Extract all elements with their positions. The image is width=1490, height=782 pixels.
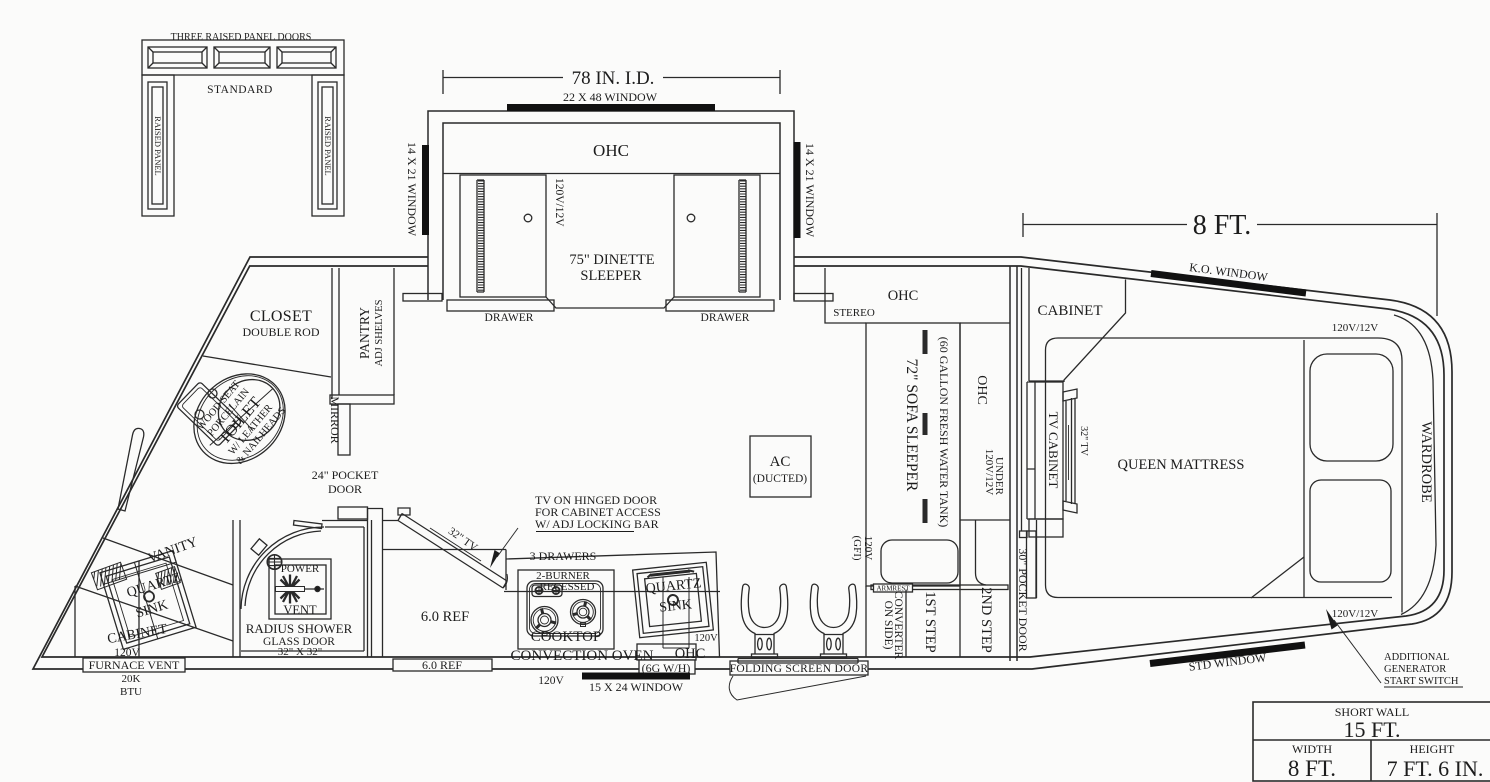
svg-text:120V/12V: 120V/12V <box>553 178 565 227</box>
svg-text:14 X 21 WINDOW: 14 X 21 WINDOW <box>405 142 419 237</box>
svg-text:78 IN. I.D.: 78 IN. I.D. <box>572 68 655 89</box>
svg-text:22 X 48 WINDOW: 22 X 48 WINDOW <box>563 90 658 104</box>
svg-text:120V: 120V <box>694 633 718 644</box>
svg-text:VANITY: VANITY <box>146 535 200 567</box>
svg-text:AC: AC <box>770 454 791 470</box>
svg-text:(6G W/H): (6G W/H) <box>642 661 691 675</box>
svg-text:(60 GALLON FRESH WATER TANK): (60 GALLON FRESH WATER TANK) <box>937 337 951 528</box>
svg-text:6.0 REF: 6.0 REF <box>421 609 469 625</box>
svg-text:ADJ SHELVES: ADJ SHELVES <box>374 299 385 366</box>
svg-text:PANTRY: PANTRY <box>357 307 372 359</box>
svg-text:FURNACE VENT: FURNACE VENT <box>89 658 180 672</box>
svg-text:3 DRAWERS: 3 DRAWERS <box>530 549 597 563</box>
svg-text:RADIUS SHOWER: RADIUS SHOWER <box>246 621 353 636</box>
svg-text:120V/12V: 120V/12V <box>1332 608 1379 620</box>
svg-text:7 FT. 6 IN.: 7 FT. 6 IN. <box>1387 756 1484 781</box>
svg-text:QUEEN MATTRESS: QUEEN MATTRESS <box>1118 457 1245 473</box>
svg-text:CLOSET: CLOSET <box>250 308 312 325</box>
svg-text:STANDARD: STANDARD <box>207 84 273 96</box>
svg-text:OHC: OHC <box>888 288 919 304</box>
svg-text:30" POCKET DOOR: 30" POCKET DOOR <box>1016 548 1030 651</box>
svg-text:RECESSED: RECESSED <box>539 581 594 593</box>
svg-text:START SWITCH: START SWITCH <box>1384 676 1459 687</box>
svg-text:WIDTH: WIDTH <box>1292 742 1332 756</box>
svg-text:CONVECTION OVEN: CONVECTION OVEN <box>511 648 654 664</box>
svg-text:OHC: OHC <box>675 646 706 662</box>
svg-text:32" TV: 32" TV <box>1078 426 1089 457</box>
svg-text:6.0 REF: 6.0 REF <box>422 658 462 672</box>
svg-text:1ST STEP: 1ST STEP <box>922 591 938 652</box>
svg-text:120V: 120V <box>538 675 564 687</box>
svg-text:ADDITIONAL: ADDITIONAL <box>1384 652 1449 663</box>
svg-text:2ND STEP: 2ND STEP <box>978 587 994 653</box>
svg-text:UNDER: UNDER <box>993 457 1005 496</box>
svg-text:14 X 21 WINDOW: 14 X 21 WINDOW <box>803 143 817 238</box>
svg-text:CABINET: CABINET <box>1038 303 1103 319</box>
svg-text:SLEEPER: SLEEPER <box>580 268 642 284</box>
svg-text:15 FT.: 15 FT. <box>1343 717 1400 742</box>
svg-text:DOUBLE ROD: DOUBLE ROD <box>243 325 320 339</box>
svg-text:72" SOFA SLEEPER: 72" SOFA SLEEPER <box>903 359 920 492</box>
svg-text:QUARTZ: QUARTZ <box>645 576 702 597</box>
svg-text:COOKTOP: COOKTOP <box>531 629 602 645</box>
svg-text:(GFI): (GFI) <box>851 535 863 560</box>
svg-text:15 X 24 WINDOW: 15 X 24 WINDOW <box>589 680 684 694</box>
svg-text:DRAWER: DRAWER <box>701 312 750 324</box>
svg-text:GENERATOR: GENERATOR <box>1384 664 1446 675</box>
svg-text:OHC: OHC <box>974 375 989 405</box>
svg-text:STEREO: STEREO <box>833 307 875 319</box>
svg-text:TV CABINET: TV CABINET <box>1046 412 1061 489</box>
svg-text:HEIGHT: HEIGHT <box>1410 742 1455 756</box>
svg-text:POWER: POWER <box>281 563 320 575</box>
svg-text:24" POCKET: 24" POCKET <box>312 468 379 482</box>
svg-text:20K: 20K <box>122 673 141 685</box>
svg-text:8 FT.: 8 FT. <box>1288 756 1336 781</box>
svg-text:32" X 32": 32" X 32" <box>278 646 322 658</box>
svg-text:VENT: VENT <box>283 603 317 617</box>
svg-text:(DUCTED): (DUCTED) <box>753 473 807 485</box>
svg-text:W/ ADJ LOCKING BAR: W/ ADJ LOCKING BAR <box>535 517 659 531</box>
svg-text:120V/12V: 120V/12V <box>1332 322 1379 334</box>
svg-text:MIRROR: MIRROR <box>328 396 342 443</box>
svg-text:WARDROBE: WARDROBE <box>1418 421 1434 503</box>
svg-text:SINK: SINK <box>659 597 693 615</box>
svg-text:RAISED PANEL: RAISED PANEL <box>153 116 163 175</box>
svg-text:ON SIDE): ON SIDE) <box>882 601 894 650</box>
svg-text:THREE RAISED PANEL DOORS: THREE RAISED PANEL DOORS <box>171 32 312 43</box>
svg-text:RAISED PANEL: RAISED PANEL <box>323 116 333 175</box>
svg-text:OHC: OHC <box>593 141 629 160</box>
svg-text:BTU: BTU <box>120 686 142 698</box>
svg-text:75" DINETTE: 75" DINETTE <box>569 252 654 268</box>
svg-text:8 FT.: 8 FT. <box>1193 210 1252 241</box>
svg-text:DOOR: DOOR <box>328 482 362 496</box>
svg-text:FOLDING SCREEN DOOR: FOLDING SCREEN DOOR <box>730 663 869 675</box>
svg-text:DRAWER: DRAWER <box>485 312 534 324</box>
